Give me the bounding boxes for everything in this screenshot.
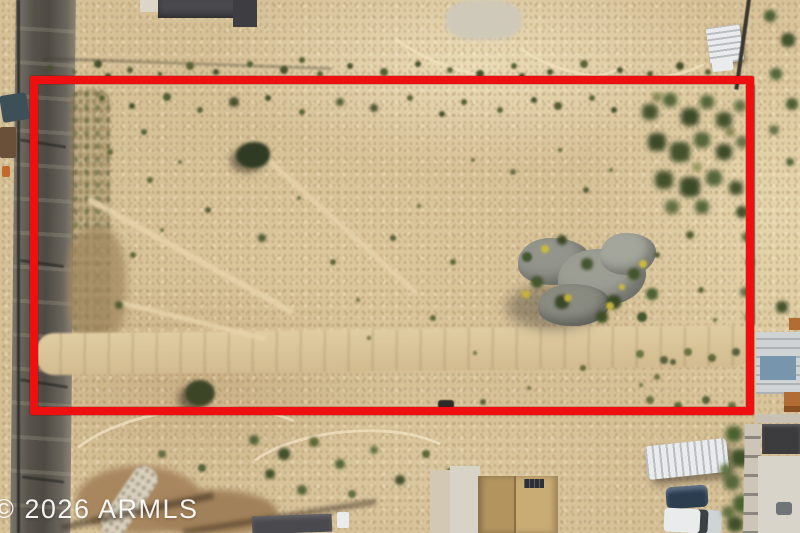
driveway xyxy=(430,470,450,533)
concrete-yard xyxy=(758,456,800,533)
parked-vehicle xyxy=(0,92,30,123)
rv-trailer xyxy=(644,438,729,480)
neighbor-house-roof-bottom-left xyxy=(252,514,333,533)
orange-container xyxy=(789,318,800,330)
powerline-shadow xyxy=(42,57,332,70)
aerial-photo: © 2026 ARMLS xyxy=(0,0,800,533)
orange-container xyxy=(784,392,800,412)
shed-roof xyxy=(0,127,16,158)
solar-panels xyxy=(524,479,544,488)
bushes-right-strip xyxy=(0,0,4,4)
concrete-apron xyxy=(450,466,480,533)
property-boundary-outline xyxy=(30,76,754,415)
neighbor-house-roof-top xyxy=(233,0,257,27)
mobile-home-blue-section xyxy=(760,356,796,380)
pickup-truck xyxy=(663,507,722,533)
roof-ridge xyxy=(514,476,516,533)
neighbor-house-roof-bottom-right xyxy=(762,424,800,454)
alley-strip xyxy=(756,414,800,423)
house-roof-left-slope xyxy=(478,476,515,533)
gray-car xyxy=(776,502,792,515)
copyright-watermark: © 2026 ARMLS xyxy=(0,494,199,525)
blue-boat xyxy=(665,485,708,510)
white-car xyxy=(337,512,349,528)
orange-equipment xyxy=(2,166,10,177)
concrete-pad xyxy=(140,0,158,12)
roadside-fence-line xyxy=(17,0,20,533)
white-trailer-tongue xyxy=(711,57,733,72)
